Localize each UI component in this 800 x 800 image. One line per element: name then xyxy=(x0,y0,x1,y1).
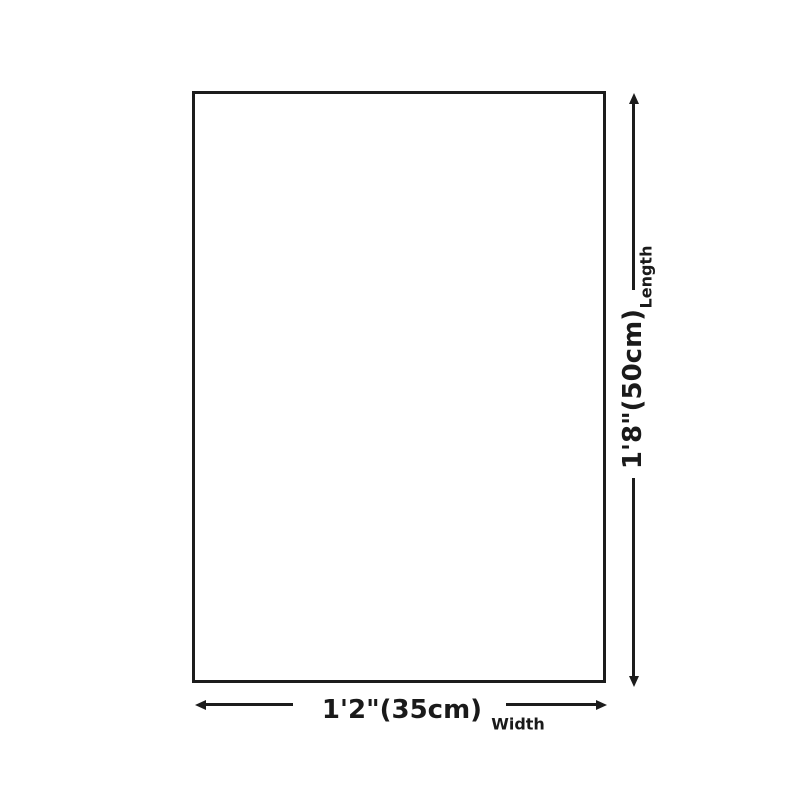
dimension-diagram: Length 1'8"(50cm) 1'2"(35cm) Width xyxy=(0,0,800,800)
width-value: 1'2"(35cm) xyxy=(322,695,482,725)
width-label: Width xyxy=(491,715,545,734)
length-value: 1'8"(50cm) xyxy=(618,309,648,469)
down-arrow-icon xyxy=(629,676,639,687)
length-arrow-lower-line xyxy=(632,478,635,677)
product-outline-rect xyxy=(192,91,606,683)
width-arrow-right-line xyxy=(506,703,597,706)
width-arrow-left-line xyxy=(205,703,293,706)
right-arrow-icon xyxy=(596,700,607,710)
length-arrow-upper-line xyxy=(632,103,635,290)
length-label: Length xyxy=(637,246,656,309)
